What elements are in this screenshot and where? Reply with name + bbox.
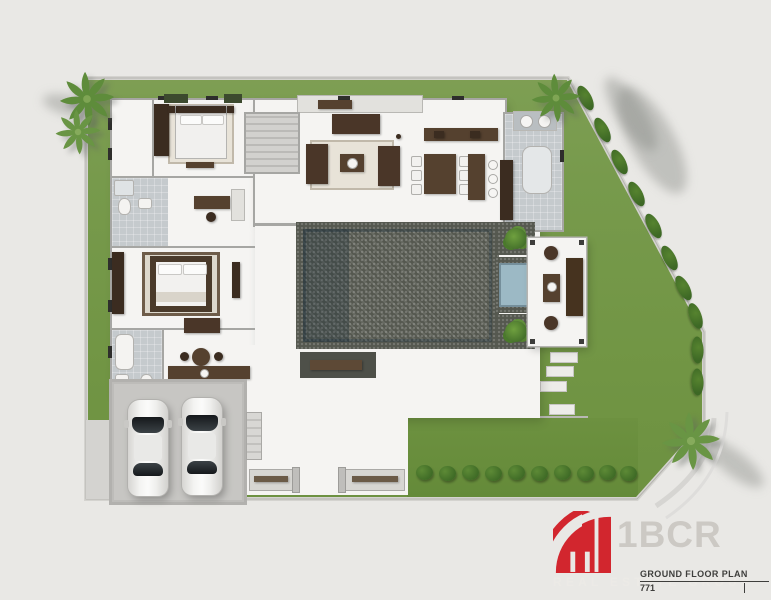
ottoman <box>544 246 558 260</box>
island-stool <box>488 188 498 198</box>
table-tray <box>347 158 358 169</box>
tall-cabinet <box>500 160 513 220</box>
bed-runner <box>156 292 206 302</box>
kitchen-island <box>468 154 485 200</box>
bed-pillow <box>202 115 224 125</box>
palm-tree <box>54 108 102 156</box>
hedge-bush <box>554 465 571 480</box>
parapet-planter <box>224 94 242 103</box>
title-block: GROUND FLOOR PLAN 771 <box>640 569 769 593</box>
sofa-top <box>332 114 380 134</box>
study-sofa <box>184 318 220 333</box>
dining-chair <box>411 184 422 195</box>
entry-steps <box>246 412 262 460</box>
bathtub <box>522 146 552 194</box>
lounge-sofa <box>566 258 583 316</box>
sofa-right <box>378 146 400 186</box>
planter-plant <box>505 321 527 342</box>
brand-name: 1BCR <box>617 514 722 556</box>
car <box>182 398 222 495</box>
floor-lamp <box>396 134 401 139</box>
window <box>108 148 112 160</box>
sala-post <box>530 240 535 245</box>
car-mirror <box>124 420 129 428</box>
hedge-bush <box>577 466 594 481</box>
hedge-bush <box>416 465 433 480</box>
dining-chair <box>411 156 422 167</box>
master-wardrobe <box>112 252 124 314</box>
dining-table <box>424 154 456 194</box>
gate-post <box>293 468 299 492</box>
hedge-bush <box>508 465 525 480</box>
hall-cabinet <box>232 190 244 220</box>
car-windshield <box>186 415 218 431</box>
desk-item <box>200 369 209 378</box>
water-feature-bench <box>310 360 362 370</box>
table-chair <box>214 352 223 361</box>
desk <box>194 196 230 209</box>
car-windshield <box>132 417 164 433</box>
palm-tree <box>530 72 582 124</box>
interior-wall <box>112 246 255 248</box>
car-roof <box>188 433 216 459</box>
sala-post <box>530 339 535 344</box>
study-desk <box>168 366 250 379</box>
interior-wall <box>298 114 300 172</box>
car <box>128 400 168 496</box>
terrace-bench <box>318 100 352 109</box>
dining-chair <box>411 170 422 181</box>
cooktop <box>434 131 444 138</box>
hedge-bush <box>439 466 456 481</box>
toilet <box>118 198 131 215</box>
ottoman <box>544 316 558 330</box>
driveway-apron <box>86 420 114 499</box>
bathtub <box>115 334 134 370</box>
pool-deep-end <box>303 229 349 342</box>
island-stool <box>488 174 498 184</box>
table-chair <box>180 352 189 361</box>
window <box>452 96 464 100</box>
bed-pillow <box>183 264 207 275</box>
bed-pillow <box>158 264 182 275</box>
car-mirror <box>178 418 183 426</box>
hedge-bush <box>599 465 616 480</box>
car-rear-glass <box>187 461 217 474</box>
window <box>206 96 218 100</box>
palm-tree <box>660 410 722 472</box>
hedge-bush <box>531 466 548 481</box>
sala-post <box>579 339 584 344</box>
round-table <box>192 348 210 366</box>
gate-planter-slat <box>254 476 288 482</box>
bed-bench <box>186 162 214 168</box>
bedroom1-bed <box>176 106 226 158</box>
window <box>560 150 564 162</box>
ground-floor-plan-rendering: 1BCR REAL ESTATE GROUP GROUND FLOOR PLAN… <box>0 0 771 600</box>
parapet-planter <box>164 94 188 103</box>
stairs <box>246 114 298 172</box>
car-roof <box>134 435 162 461</box>
bed-headboard <box>176 106 226 113</box>
kitchen-sink <box>470 131 480 138</box>
drawing-title: GROUND FLOOR PLAN <box>640 569 769 582</box>
table-item <box>547 282 557 292</box>
sala-post <box>579 240 584 245</box>
sofa-left <box>306 144 328 184</box>
hedge-bush <box>620 466 637 481</box>
car-mirror <box>221 418 226 426</box>
gate-post <box>339 468 345 492</box>
car-rear-glass <box>133 463 163 476</box>
title-block-cell <box>744 583 769 593</box>
bed-pillow <box>180 115 202 125</box>
1bcr-logo-icon <box>553 511 611 573</box>
tv-console <box>232 262 240 298</box>
shower <box>114 180 134 196</box>
nightstand <box>168 106 175 113</box>
bedroom1-wardrobe <box>154 104 169 156</box>
covered-terrace <box>298 96 422 112</box>
desk-chair <box>206 212 216 222</box>
stepping-stone <box>546 366 574 377</box>
sheet-number: 771 <box>640 583 655 593</box>
hedge-bush <box>485 466 502 481</box>
island-stool <box>488 160 498 170</box>
sink <box>138 198 152 209</box>
stepping-stone <box>550 352 578 363</box>
hedge-bush <box>462 465 479 480</box>
planter-plant <box>505 228 527 249</box>
nightstand <box>227 106 234 113</box>
stepping-stone <box>540 381 567 392</box>
gate-planter-slat <box>352 476 398 482</box>
car-mirror <box>167 420 172 428</box>
stepping-stone <box>549 404 575 415</box>
